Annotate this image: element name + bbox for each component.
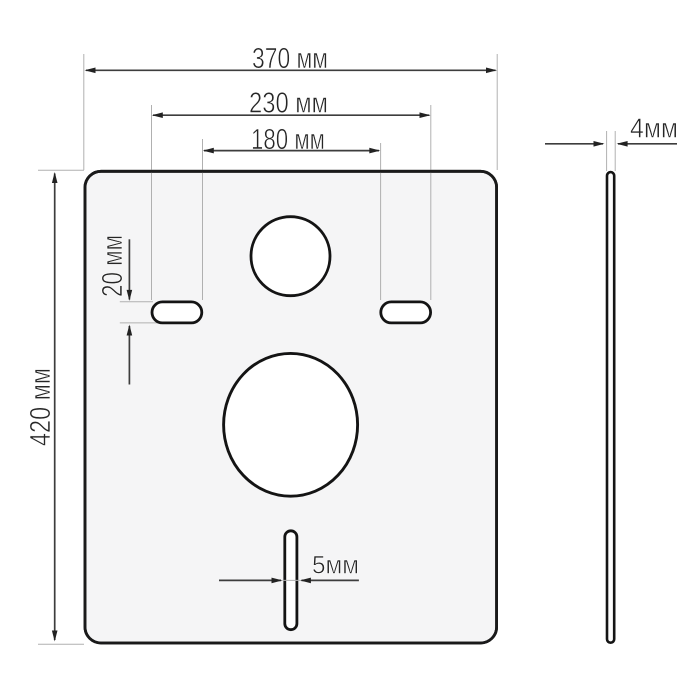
svg-text:20 мм: 20 мм: [97, 235, 129, 297]
svg-text:420 мм: 420 мм: [25, 368, 57, 446]
svg-text:230 мм: 230 мм: [249, 88, 328, 120]
svg-text:370 мм: 370 мм: [252, 43, 328, 75]
svg-text:4мм: 4мм: [630, 113, 678, 144]
svg-text:5мм: 5мм: [312, 552, 359, 580]
svg-text:180 мм: 180 мм: [251, 124, 325, 156]
